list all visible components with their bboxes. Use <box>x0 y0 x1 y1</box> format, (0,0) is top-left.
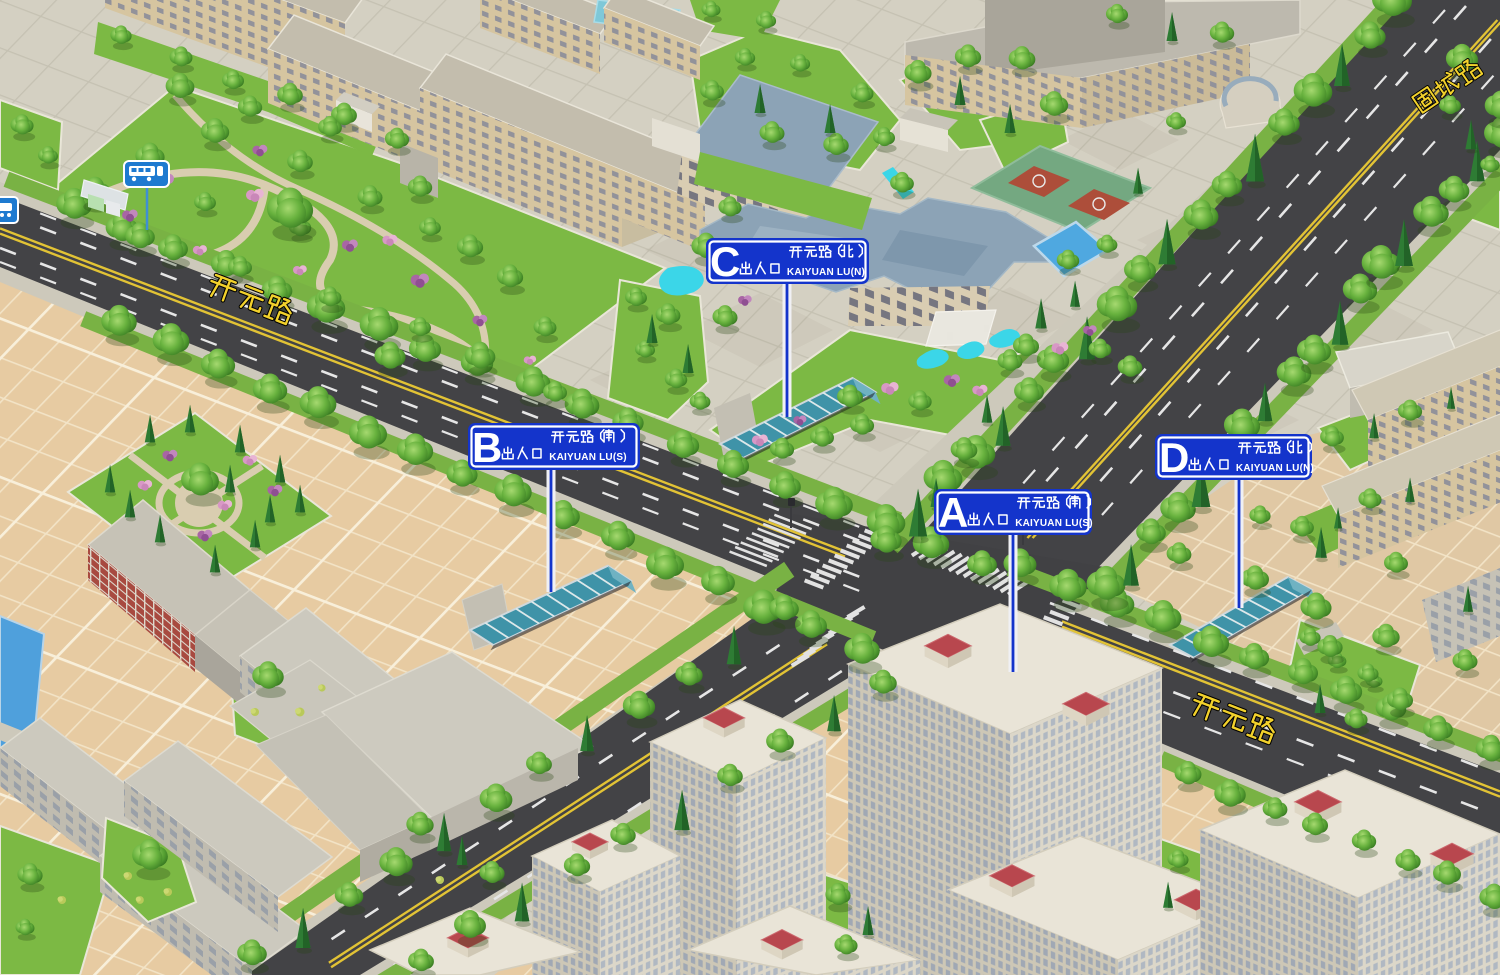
svg-text:KAIYUAN LU(N): KAIYUAN LU(N) <box>1236 463 1314 474</box>
svg-text:C: C <box>710 238 740 285</box>
svg-text:B: B <box>472 424 502 471</box>
svg-text:A: A <box>938 489 968 536</box>
svg-text:KAIYUAN LU(S): KAIYUAN LU(S) <box>549 452 627 463</box>
svg-text:KAIYUAN LU(N): KAIYUAN LU(N) <box>787 267 865 278</box>
svg-text:D: D <box>1159 434 1189 481</box>
svg-text:KAIYUAN LU(S): KAIYUAN LU(S) <box>1015 518 1093 529</box>
